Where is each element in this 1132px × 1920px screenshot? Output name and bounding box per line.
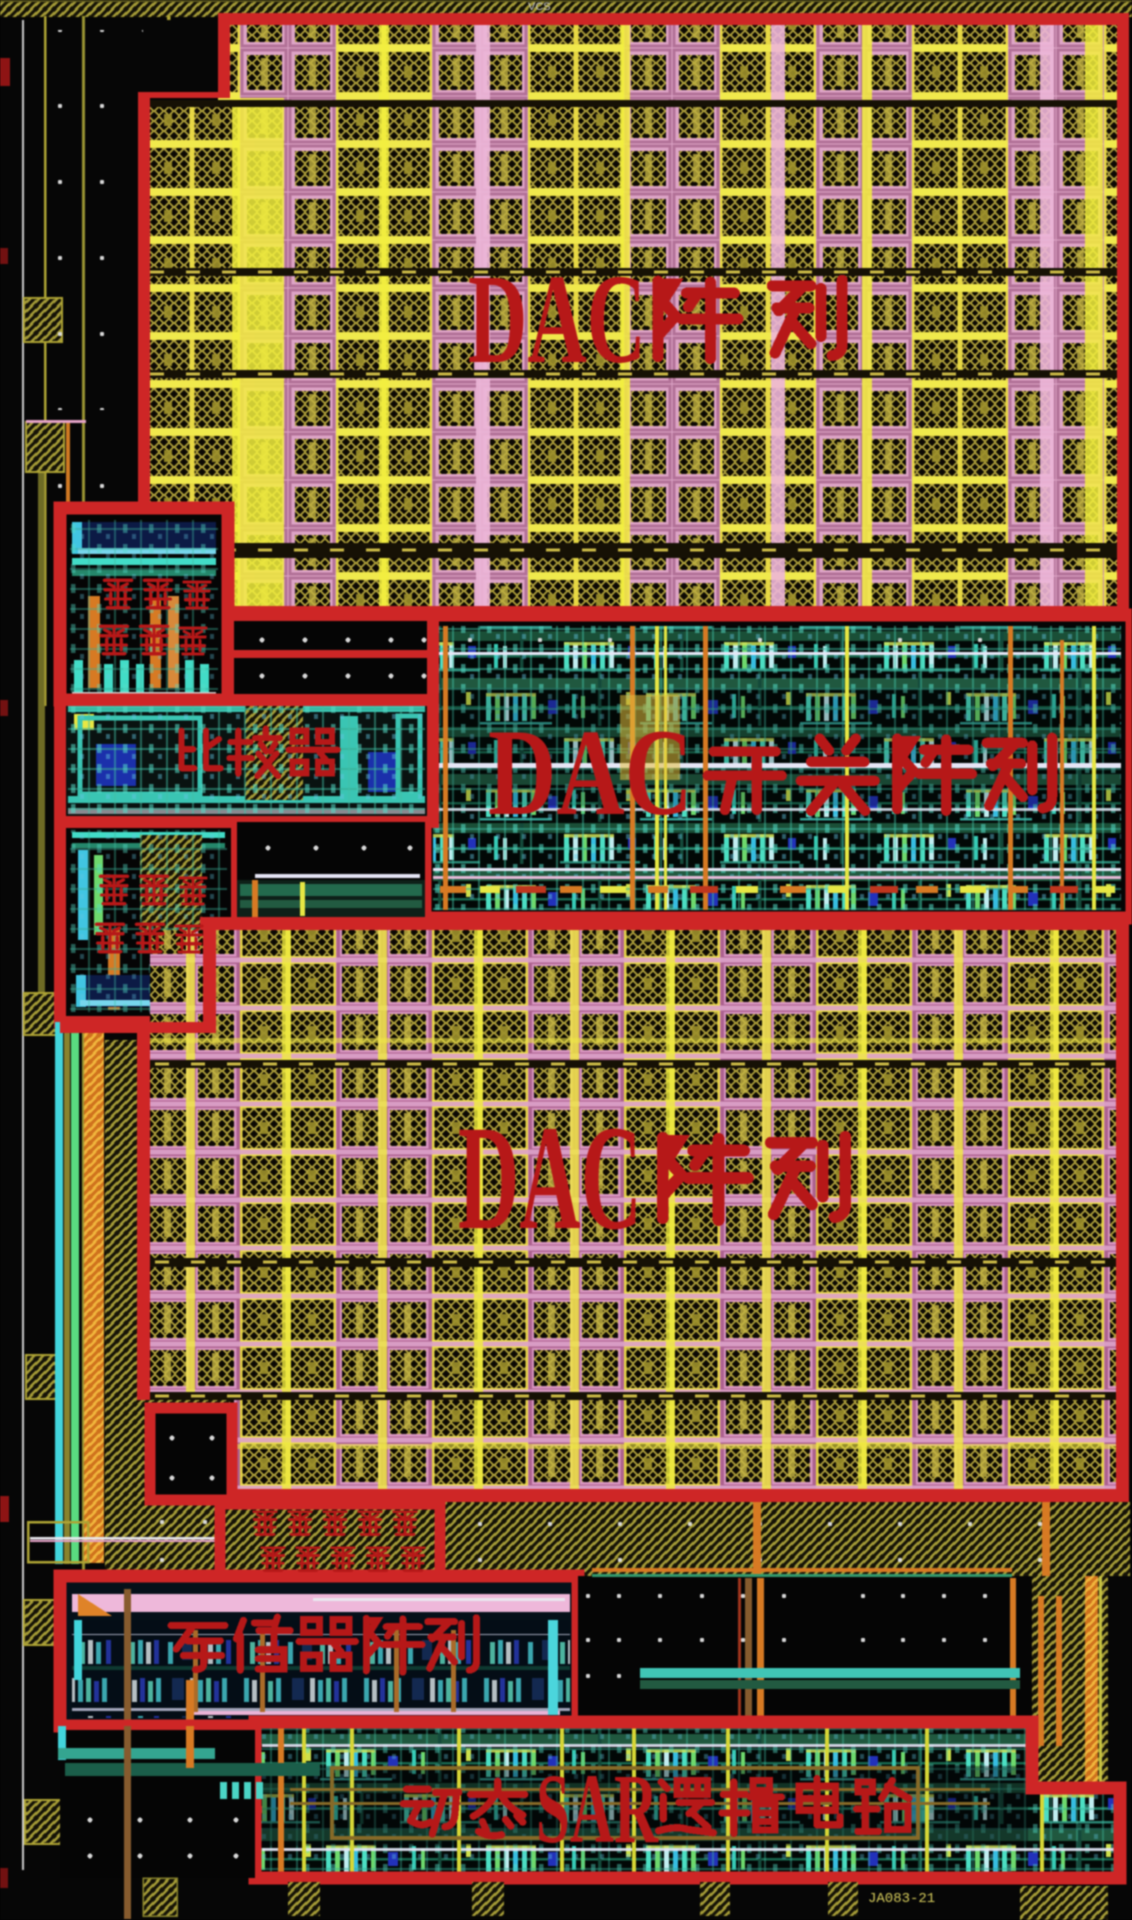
svg-text:JA083-21: JA083-21 bbox=[868, 1891, 935, 1907]
svg-text:DAC: DAC bbox=[458, 1095, 642, 1261]
svg-text:SAR: SAR bbox=[536, 1753, 659, 1864]
svg-text:DAC: DAC bbox=[488, 704, 693, 841]
svg-text:VCS: VCS bbox=[528, 1, 551, 13]
svg-text:DAC: DAC bbox=[468, 248, 646, 390]
